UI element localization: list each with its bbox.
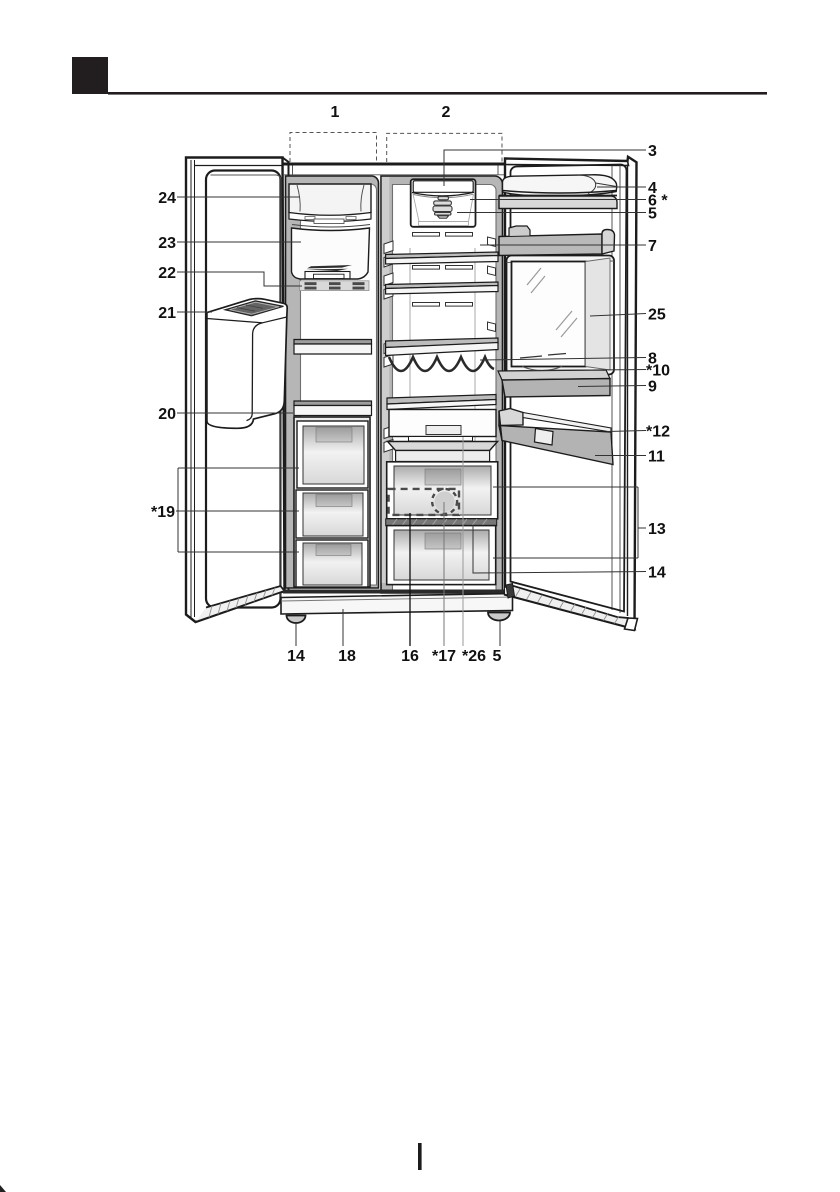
svg-text:21: 21 [158,305,176,322]
svg-text:23: 23 [158,235,176,252]
svg-text:9: 9 [648,379,657,396]
svg-text:14: 14 [648,565,666,582]
svg-text:*10: *10 [646,363,670,380]
svg-text:14: 14 [287,648,305,665]
svg-text:7: 7 [648,238,657,255]
svg-text:18: 18 [338,648,356,665]
svg-text:16: 16 [401,648,419,665]
svg-text:*17: *17 [432,648,456,665]
svg-text:3: 3 [648,143,657,160]
svg-text:*12: *12 [646,424,670,441]
svg-text:11: 11 [648,449,665,466]
svg-text:*26: *26 [462,648,486,665]
svg-text:24: 24 [158,190,176,207]
svg-text:13: 13 [648,521,666,538]
svg-text:25: 25 [648,307,666,324]
svg-text:5: 5 [648,206,657,223]
svg-text:5: 5 [493,648,502,665]
svg-text:*19: *19 [151,504,175,521]
svg-text:1: 1 [331,104,340,121]
svg-text:22: 22 [158,265,176,282]
svg-text:20: 20 [158,406,176,423]
svg-text:2: 2 [442,104,451,121]
